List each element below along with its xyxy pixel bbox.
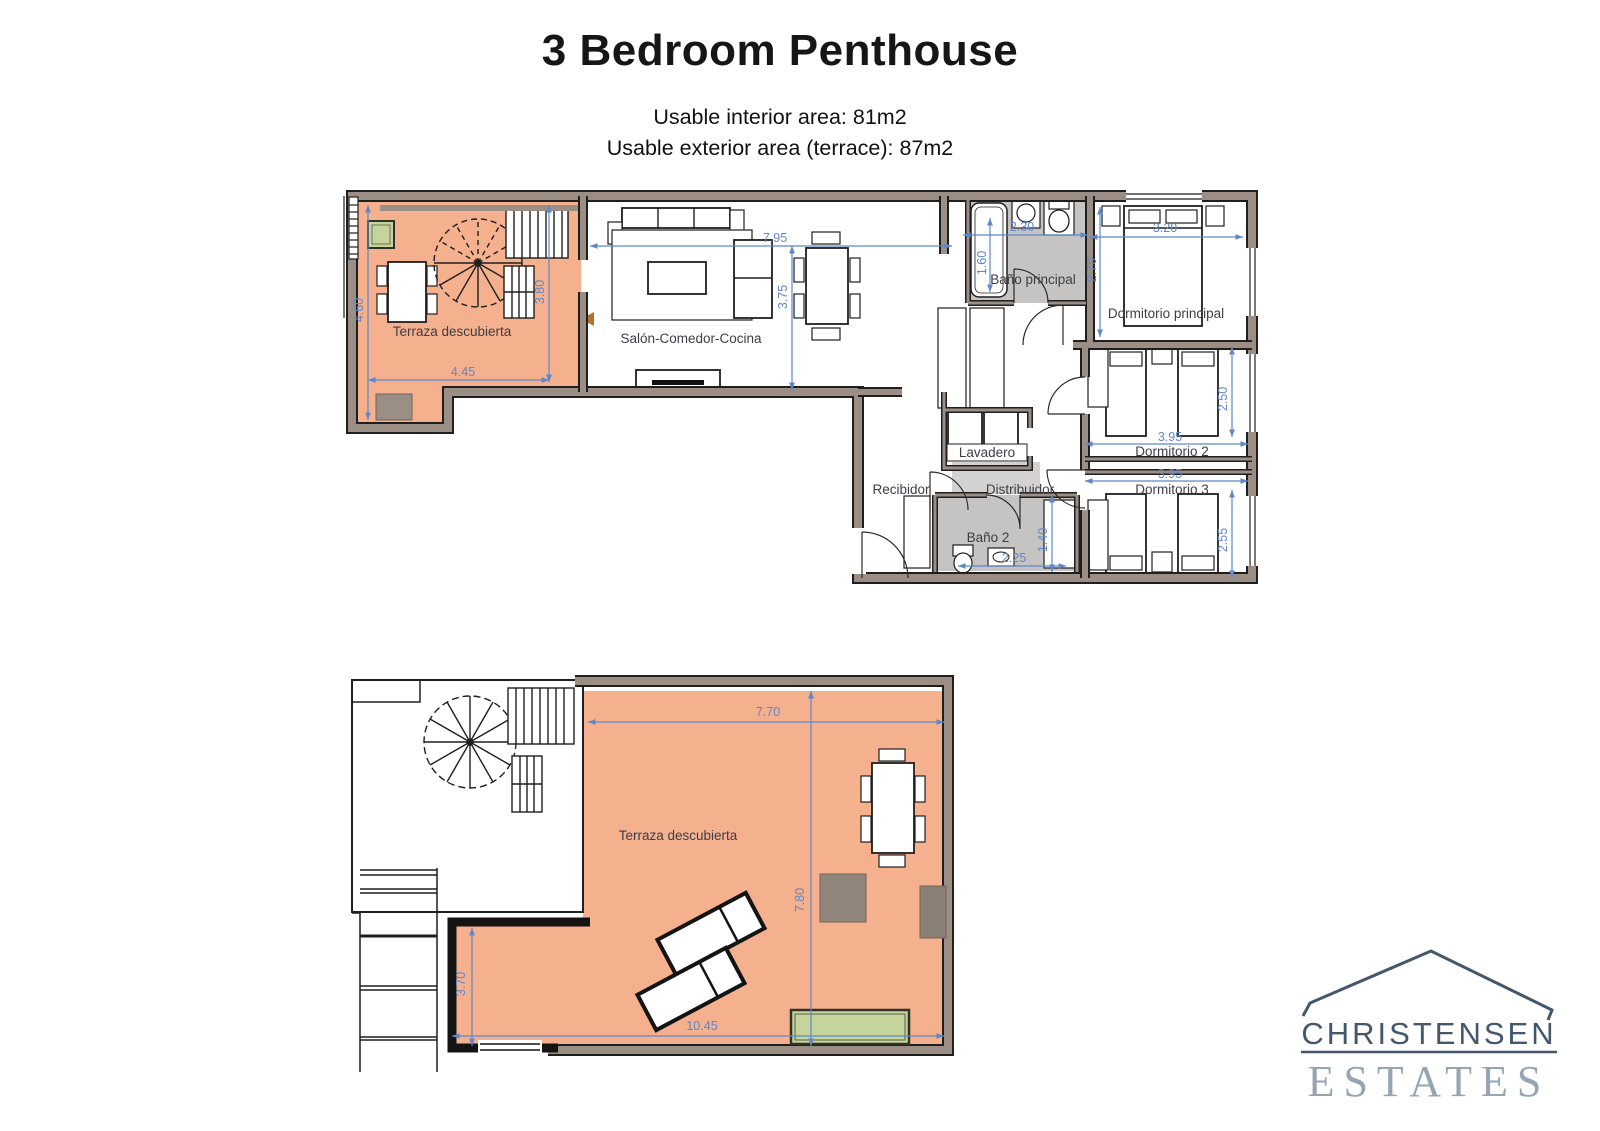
dim-bedroom1-width: 3.20 <box>1153 221 1177 235</box>
bedroom2-door <box>1048 377 1085 414</box>
floor2-plan: 7.70 7.80 3.70 10.45 Terraza descubierta <box>352 680 948 1072</box>
dim-roof-top-width: 7.70 <box>756 705 780 719</box>
room-label-hall: Recibidor <box>872 482 930 497</box>
terrace-planter <box>368 221 394 248</box>
room-label-bedroom3: Dormitorio 3 <box>1135 482 1209 497</box>
dim-bath2-width: 2.25 <box>1002 551 1026 565</box>
dim-living-width: 7.95 <box>763 231 787 245</box>
laundry-appliances <box>948 412 1018 446</box>
dim-terrace-width: 4.45 <box>451 365 475 379</box>
room-label-bedroom1: Dormitorio principal <box>1108 306 1224 321</box>
coffee-table <box>648 262 706 294</box>
room-label-bedroom2: Dormitorio 2 <box>1135 444 1209 459</box>
room-label-bath2: Baño 2 <box>967 530 1010 545</box>
dim-terrace-inner-height: 3.80 <box>533 280 547 304</box>
floor1-plan: 4.60 3.80 4.45 7.95 3.75 2.30 1.60 3.20 … <box>344 190 1258 578</box>
entrance-door-arc <box>862 532 908 578</box>
floor-plans-canvas: 4.60 3.80 4.45 7.95 3.75 2.30 1.60 3.20 … <box>0 0 1600 1131</box>
dim-bedroom2-height: 2.50 <box>1216 387 1230 411</box>
dim-roof-bottom-width: 10.45 <box>686 1019 717 1033</box>
room-label-living: Salón-Comedor-Cocina <box>620 331 762 346</box>
room-label-bath1: Baño principal <box>990 272 1076 287</box>
terrace-mat <box>376 394 412 420</box>
dim-bedroom3-height: 2.55 <box>1216 528 1230 552</box>
dining-table <box>794 232 860 340</box>
dim-bedroom3-width: 3.95 <box>1158 467 1182 481</box>
entrance-opening <box>850 528 866 574</box>
roof-planter <box>791 1010 909 1044</box>
bedroom2-beds <box>1088 347 1218 436</box>
bedroom3-beds <box>1088 494 1218 574</box>
dim-bath1-height: 1.60 <box>975 251 989 275</box>
brand-logo: CHRISTENSEN ESTATES <box>1301 951 1557 1106</box>
chaise <box>734 240 772 318</box>
floor-plan-page: 3 Bedroom Penthouse Usable interior area… <box>0 0 1600 1131</box>
dim-living-height: 3.75 <box>776 285 790 309</box>
room-label-laundry: Lavadero <box>959 445 1015 460</box>
roof-door-opening <box>478 1040 542 1055</box>
room-label-terrace: Terraza descubierta <box>393 324 512 339</box>
roof-table-1 <box>820 874 866 922</box>
roof-table-2 <box>920 886 946 938</box>
dim-bedroom2-width: 3.95 <box>1158 430 1182 444</box>
dim-bath1-width: 2.30 <box>1010 220 1034 234</box>
roof-logo-icon <box>1303 951 1552 1020</box>
dim-roof-left-height: 3.70 <box>454 972 468 996</box>
bedroom1-door <box>1023 305 1063 345</box>
room-label-corridor: Distribuidor <box>986 482 1055 497</box>
dim-terrace-height: 4.60 <box>352 298 366 322</box>
logo-word-text: ESTATES <box>1308 1057 1551 1106</box>
logo-name-text: CHRISTENSEN <box>1301 1016 1556 1051</box>
room-label-roof-terrace: Terraza descubierta <box>619 828 738 843</box>
dim-roof-right-height: 7.80 <box>793 888 807 912</box>
dim-bedroom1-height: 2.70 <box>1085 258 1099 282</box>
corridor-closets <box>938 308 1004 408</box>
dim-bath2-height: 1.40 <box>1036 528 1050 552</box>
